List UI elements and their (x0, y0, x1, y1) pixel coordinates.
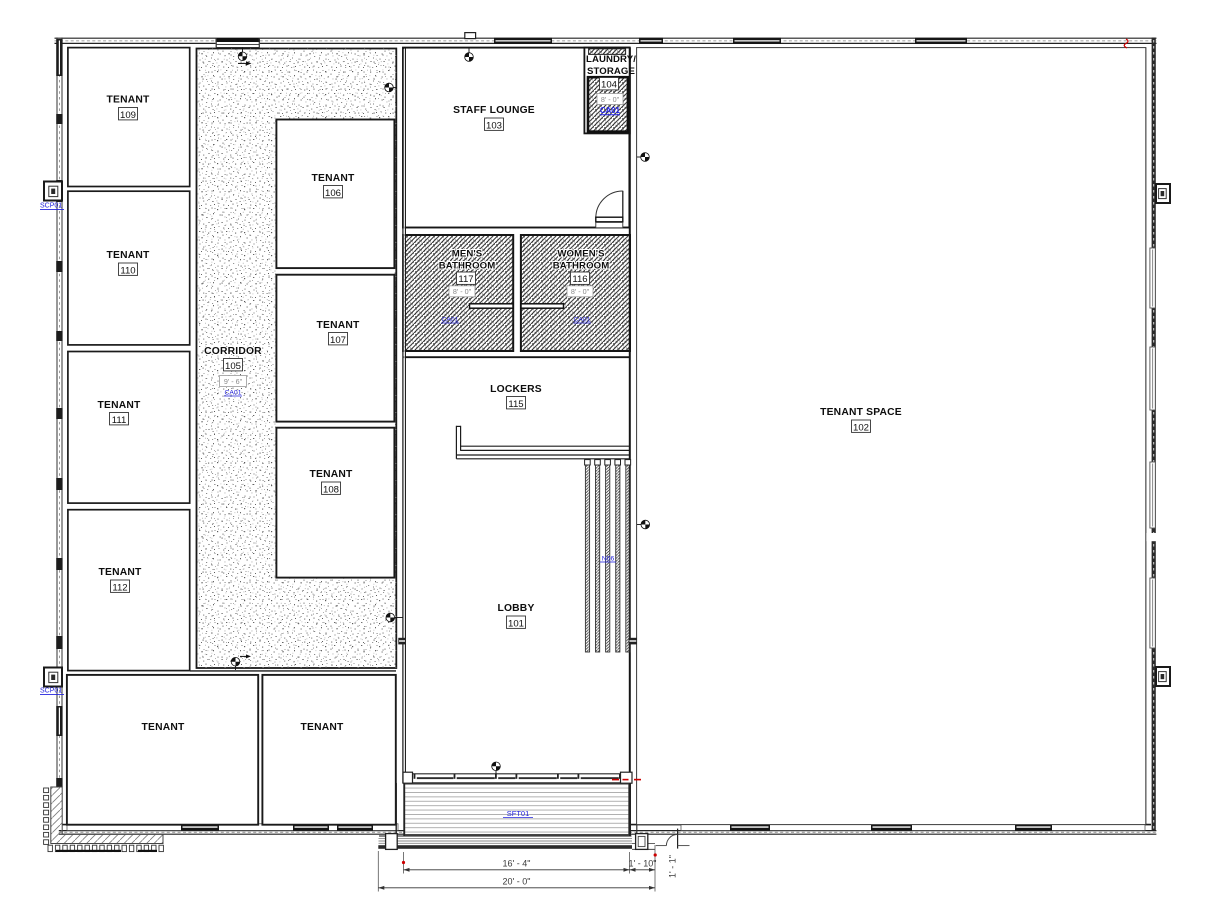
svg-text:TENANT: TENANT (107, 95, 150, 106)
svg-text:WOMEN'S: WOMEN'S (557, 249, 605, 260)
svg-text:16' - 4": 16' - 4" (503, 858, 531, 868)
svg-text:TENANT: TENANT (312, 173, 355, 184)
svg-text:102: 102 (853, 422, 869, 433)
svg-text:BATHROOM: BATHROOM (439, 261, 496, 272)
svg-text:20' - 0": 20' - 0" (503, 876, 531, 886)
svg-text:STORAGE: STORAGE (587, 66, 635, 77)
svg-text:SCP01: SCP01 (40, 203, 62, 210)
svg-text:LOCKERS: LOCKERS (490, 384, 542, 395)
svg-text:STAFF LOUNGE: STAFF LOUNGE (453, 105, 535, 116)
svg-text:TENANT: TENANT (317, 320, 360, 331)
svg-text:TENANT: TENANT (310, 469, 353, 480)
svg-text:TENANT: TENANT (99, 567, 142, 578)
svg-text:CORRIDOR: CORRIDOR (204, 346, 262, 357)
svg-text:8' - 0": 8' - 0" (571, 287, 590, 296)
svg-text:LOBBY: LOBBY (497, 603, 534, 614)
svg-text:1' - 1": 1' - 1" (668, 855, 678, 878)
svg-text:107: 107 (330, 335, 346, 346)
svg-text:LAUNDRY/: LAUNDRY/ (586, 54, 636, 65)
svg-text:SCP01: SCP01 (40, 688, 62, 695)
svg-text:112: 112 (112, 582, 127, 593)
svg-text:109: 109 (120, 110, 136, 121)
svg-text:110: 110 (120, 265, 135, 276)
svg-text:TENANT: TENANT (107, 250, 150, 261)
svg-text:105: 105 (225, 361, 241, 372)
svg-text:106: 106 (325, 188, 341, 199)
svg-text:115: 115 (508, 399, 523, 410)
svg-text:CA01: CA01 (441, 316, 458, 323)
svg-text:103: 103 (486, 120, 502, 131)
svg-text:9' - 6": 9' - 6" (224, 377, 243, 386)
svg-text:101: 101 (508, 618, 524, 629)
svg-text:TENANT: TENANT (142, 722, 185, 733)
svg-text:108: 108 (323, 484, 339, 495)
svg-text:8' - 0": 8' - 0" (601, 95, 620, 104)
svg-text:TENANT: TENANT (98, 400, 141, 411)
svg-text:TENANT: TENANT (301, 722, 344, 733)
svg-text:116: 116 (572, 274, 587, 285)
svg-text:SFT01: SFT01 (507, 809, 530, 818)
svg-text:104: 104 (601, 80, 618, 91)
svg-text:CA01: CA01 (600, 106, 621, 115)
svg-text:TENANT SPACE: TENANT SPACE (820, 407, 902, 418)
svg-text:BATHROOM: BATHROOM (553, 261, 610, 272)
svg-text:117: 117 (458, 274, 473, 285)
svg-text:111: 111 (112, 415, 127, 426)
svg-text:CA01: CA01 (573, 316, 590, 323)
svg-text:MEN'S: MEN'S (452, 249, 483, 260)
svg-text:1' - 10": 1' - 10" (629, 858, 657, 868)
svg-text:N06: N06 (602, 555, 615, 562)
svg-text:8' - 0": 8' - 0" (453, 287, 472, 296)
svg-text:CA01: CA01 (224, 389, 241, 396)
